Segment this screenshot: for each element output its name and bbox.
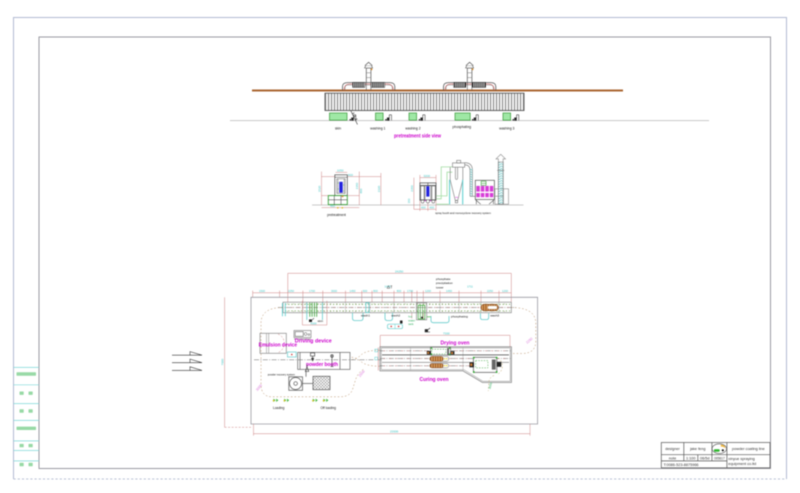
- svg-text:3000: 3000: [331, 289, 337, 293]
- svg-text:7300: 7300: [443, 331, 450, 335]
- svg-text:24250: 24250: [395, 269, 404, 273]
- svg-text:wash3: wash3: [490, 313, 499, 317]
- svg-text:powder booth: powder booth: [306, 362, 338, 368]
- svg-text:Curing oven: Curing oven: [420, 377, 450, 383]
- svg-text:skin: skin: [335, 127, 341, 131]
- svg-text:800: 800: [359, 188, 363, 193]
- svg-text:400: 400: [429, 206, 434, 210]
- svg-text:2350: 2350: [355, 182, 359, 189]
- svg-text:tower: tower: [436, 285, 444, 289]
- svg-text:800: 800: [397, 289, 402, 293]
- svg-text:Drying oven: Drying oven: [441, 340, 471, 346]
- svg-text:800: 800: [373, 289, 378, 293]
- svg-text:2250: 2250: [487, 289, 493, 293]
- svg-text:note: note: [669, 456, 676, 460]
- svg-text:2250: 2250: [288, 289, 294, 293]
- svg-text:washing 2: washing 2: [405, 127, 420, 131]
- svg-text:phosphating: phosphating: [451, 315, 468, 319]
- svg-text:pretreatment: pretreatment: [327, 213, 346, 217]
- svg-text:1500: 1500: [259, 289, 265, 293]
- svg-text:designer: designer: [665, 447, 680, 451]
- svg-text:3200: 3200: [424, 174, 431, 178]
- svg-text:1050: 1050: [337, 169, 344, 173]
- svg-text:1:100: 1:100: [686, 456, 696, 460]
- svg-text:equipment co.ltd: equipment co.ltd: [728, 462, 756, 466]
- svg-text:washing 1: washing 1: [370, 127, 385, 131]
- svg-text:pretreatment side view: pretreatment side view: [394, 134, 442, 140]
- svg-text:1450: 1450: [350, 289, 356, 293]
- svg-text:600: 600: [348, 173, 353, 177]
- svg-text:Emulsion device: Emulsion device: [259, 342, 298, 348]
- svg-text:T:0086-523-8875966: T:0086-523-8875966: [664, 463, 699, 467]
- svg-text:xinyue spraying: xinyue spraying: [728, 457, 754, 461]
- svg-text:jake feng: jake feng: [689, 447, 705, 451]
- svg-text:1700: 1700: [309, 289, 315, 293]
- svg-text:1700: 1700: [407, 289, 413, 293]
- svg-text:powder recovery system: powder recovery system: [268, 372, 296, 376]
- svg-text:Off loading: Off loading: [321, 406, 337, 410]
- svg-text:powder coating line: powder coating line: [732, 447, 765, 451]
- svg-text:1711: 1711: [467, 285, 473, 289]
- svg-text:1200: 1200: [425, 289, 431, 293]
- svg-text:Driving device: Driving device: [295, 338, 332, 344]
- svg-text:900: 900: [363, 289, 368, 293]
- svg-text:2350: 2350: [410, 185, 414, 192]
- svg-text:Loading: Loading: [273, 406, 285, 410]
- svg-text:1520: 1520: [317, 185, 321, 192]
- svg-text:06/5d: 06/5d: [700, 456, 710, 460]
- svg-text:1450: 1450: [446, 289, 452, 293]
- svg-text:005617: 005617: [714, 456, 725, 460]
- svg-text:skin: skin: [318, 319, 324, 323]
- svg-text:washing 3: washing 3: [499, 127, 514, 131]
- svg-text:7000: 7000: [221, 358, 225, 365]
- svg-text:spray booth and monocyclone re: spray booth and monocyclone recovery sys…: [435, 211, 491, 215]
- svg-text:4300: 4300: [310, 322, 317, 326]
- svg-text:phosphating: phosphating: [453, 125, 472, 129]
- svg-text:2320: 2320: [377, 185, 381, 192]
- svg-text:tank: tank: [408, 322, 414, 326]
- svg-text:23936: 23936: [390, 430, 399, 434]
- svg-text:wash1: wash1: [361, 313, 370, 317]
- svg-text:wash2: wash2: [391, 313, 400, 317]
- svg-text:1200: 1200: [502, 289, 508, 293]
- svg-text:400: 400: [421, 206, 426, 210]
- svg-text:150: 150: [407, 198, 411, 203]
